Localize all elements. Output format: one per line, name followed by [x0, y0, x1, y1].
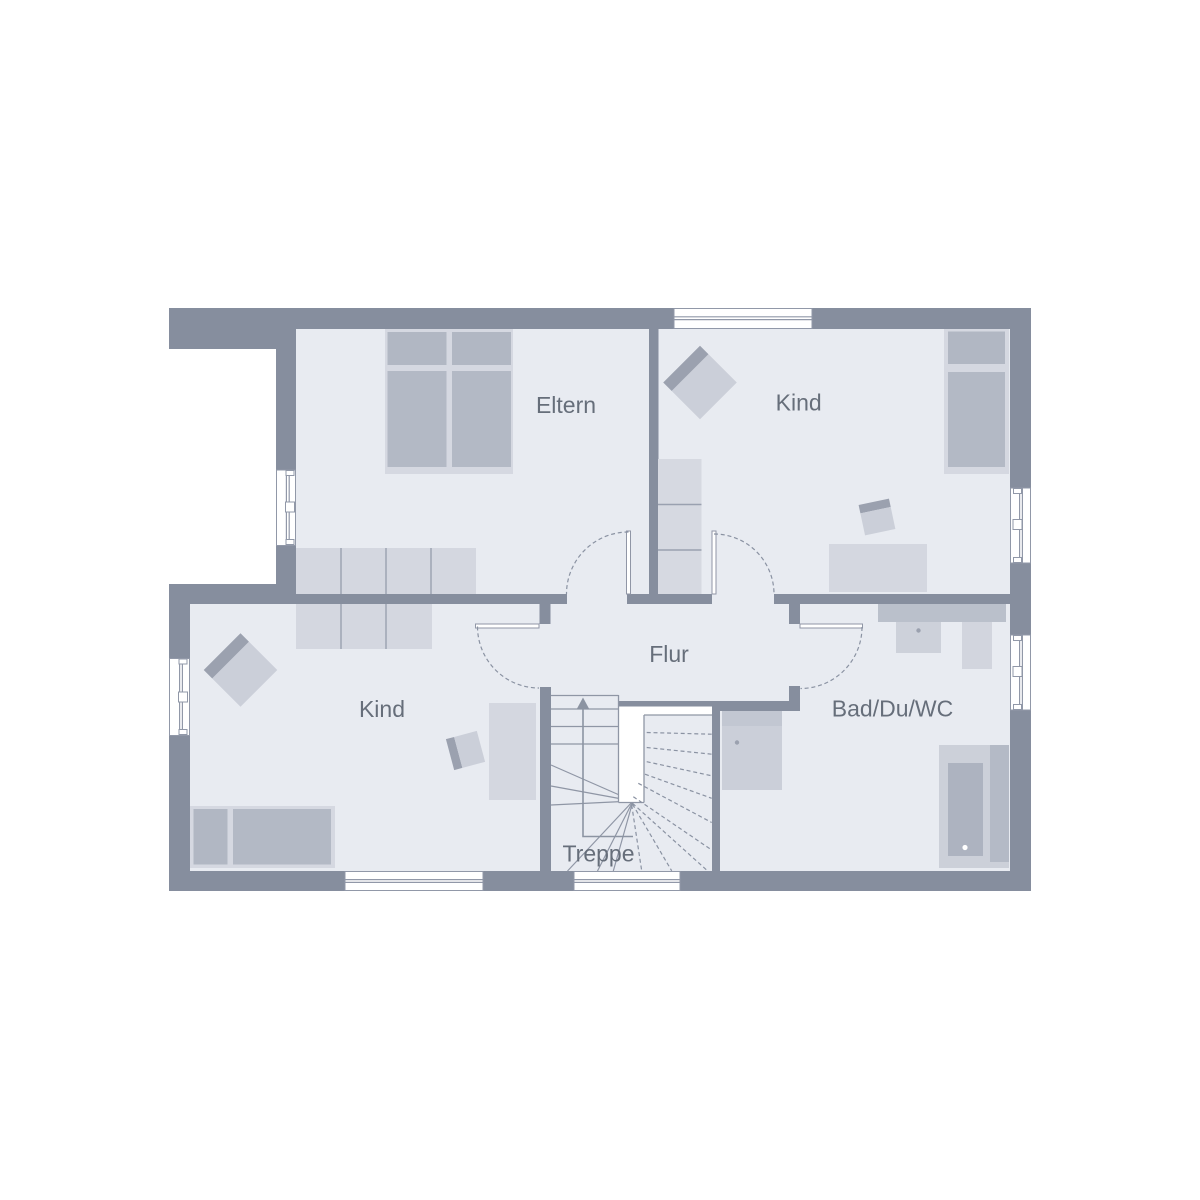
svg-text:Treppe: Treppe [562, 841, 634, 867]
svg-text:Eltern: Eltern [536, 392, 596, 418]
svg-text:Flur: Flur [649, 641, 689, 667]
svg-text:Bad/Du/WC: Bad/Du/WC [832, 696, 953, 722]
svg-text:Kind: Kind [776, 390, 822, 416]
svg-text:Kind: Kind [359, 696, 405, 722]
